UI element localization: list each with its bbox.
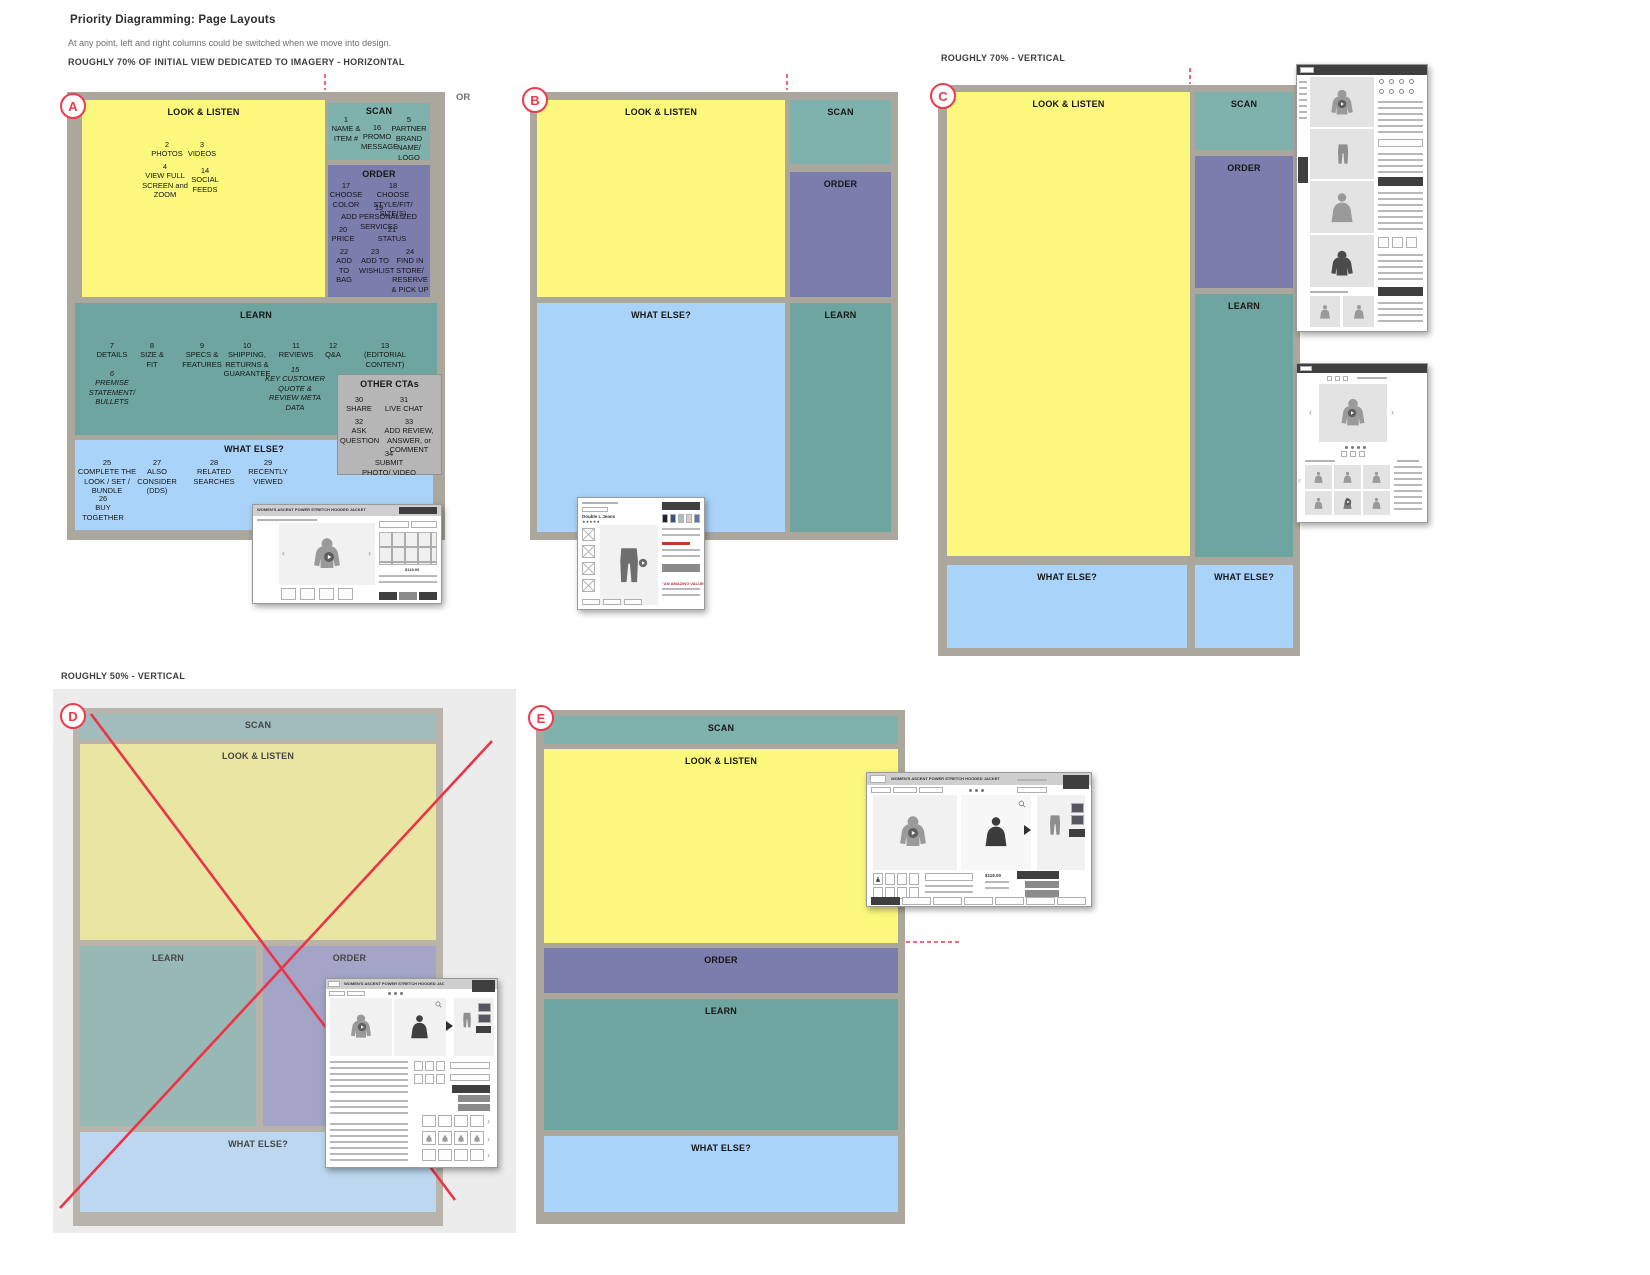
person-glyph [1317, 300, 1333, 324]
page-title: Priority Diagramming: Page Layouts [70, 14, 276, 26]
carousel-right-icon: › [487, 1135, 490, 1144]
carousel-dot [394, 992, 397, 995]
layout-e-scan-block: SCAN [544, 716, 898, 744]
thumb-text-lines [985, 881, 1009, 891]
diagram-item: 12Q&A [319, 341, 347, 360]
thumb-product-tile [454, 1149, 468, 1161]
thumb-icon-dot [1399, 79, 1404, 84]
thumb-breadcrumb-line [582, 502, 618, 504]
carousel-right-icon: › [368, 549, 371, 558]
thumb-mini-image [300, 588, 315, 600]
thumb-swatch-grid [379, 532, 437, 565]
diagram-item: 24FIND IN STORE/ RESERVE & PICK UP [391, 247, 429, 294]
diagram-item: 34SUBMIT PHOTO/ VIDEO [360, 449, 418, 477]
thumb-overlay-chip [478, 1003, 491, 1012]
thumb-tab [603, 599, 621, 605]
thumb-mini-image [319, 588, 334, 600]
block-title: WHAT ELSE? [544, 1136, 898, 1153]
thumb-swatch [662, 514, 668, 523]
thumb-bottom-tab [1057, 897, 1086, 905]
thumb-toolbar-icon [1327, 376, 1332, 381]
thumb-icon-dot [1389, 79, 1394, 84]
thumb-text-lines [330, 1123, 408, 1161]
thumb-button [379, 592, 397, 600]
thumb-product-tile [422, 1115, 436, 1127]
or-label-top: OR [456, 92, 470, 103]
thumb-button [419, 592, 437, 600]
block-title: LOOK & LISTEN [947, 92, 1190, 109]
diagram-item: 31LIVE CHAT [382, 395, 426, 414]
thumb-icon-dot [1379, 79, 1384, 84]
layout-c-order-block: ORDER [1195, 156, 1293, 288]
diagram-item: 21STATUS [375, 225, 409, 244]
hoodie-glyph [425, 1133, 433, 1144]
thumb-alt-view [582, 528, 595, 541]
carousel-dot [400, 992, 403, 995]
thumb-icon-square [1392, 237, 1403, 248]
jeans-glyph [1331, 135, 1355, 173]
thumb-swatch [694, 514, 700, 523]
thumb-tab [624, 599, 642, 605]
thumb-icon-square [1341, 451, 1347, 457]
carousel-right-icon: › [1391, 408, 1394, 417]
thumb-overlay-chip [1071, 815, 1084, 825]
thumb-icon-square [414, 1074, 423, 1084]
thumb-tab [893, 787, 917, 793]
diagram-item: 22ADD TO BAG [331, 247, 357, 285]
carousel-dot [975, 789, 978, 792]
block-title: OTHER CTAs [338, 375, 441, 389]
page-subtitle: At any point, left and right columns cou… [68, 38, 391, 48]
thumb-side-icons [1299, 81, 1307, 121]
thumb-logo [1300, 366, 1312, 371]
thumb-side-badge [1298, 157, 1308, 183]
thumb-dropdown [411, 521, 437, 528]
thumb-icon-square [425, 1061, 434, 1071]
thumb-toolbar-icon [1343, 376, 1348, 381]
thumb-icon-dot [1379, 89, 1384, 94]
thumb-overlay-chip [478, 1014, 491, 1023]
jeans-glyph [1043, 805, 1067, 845]
layout-b-badge: B [522, 87, 548, 113]
diagram-item: 15KEY CUSTOMER QUOTE & REVIEW META DATA [265, 365, 325, 412]
thumb-dropdown [925, 873, 973, 881]
thumb-dropdown [1378, 139, 1423, 147]
thumb-caption-line [1017, 779, 1047, 781]
thumb-text-lines [662, 528, 700, 538]
thumb-bottom-tab [871, 897, 900, 905]
person-glyph [1312, 468, 1325, 487]
hoodie-glyph [473, 1133, 481, 1144]
thumb-product-tile [470, 1149, 484, 1161]
mobile-screenshot-thumbnail-1 [1296, 64, 1428, 332]
diagram-item: 23ADD TO WISHLIST [359, 247, 391, 275]
thumb-icon-square [436, 1074, 445, 1084]
block-title: ORDER [790, 172, 891, 189]
person-glyph [1341, 468, 1354, 487]
layout-c-what-else-right-block: WHAT ELSE? [1195, 565, 1293, 648]
thumb-icon-square [436, 1061, 445, 1071]
block-title: SCAN [790, 100, 891, 117]
desktop-screenshot-thumbnail-d: WOMEN'S ASCENT POWER STRETCH HOODED JACK… [325, 978, 498, 1168]
thumb-icon-square [1406, 237, 1417, 248]
hoodie-glyph [457, 1133, 465, 1144]
thumb-breadcrumb-line [257, 519, 317, 521]
thumb-button [1378, 177, 1423, 186]
diagram-item: 27ALSO CONSIDER (DDS) [132, 458, 182, 496]
diagram-item: 25COMPLETE THE LOOK / SET / BUNDLE [77, 458, 137, 496]
thumb-text-lines [379, 575, 437, 585]
thumb-value-note: "AN AMAZING VALUE" [662, 582, 705, 587]
block-title: LOOK & LISTEN [544, 749, 898, 766]
thumb-dropdown [379, 521, 409, 528]
play-icon [907, 827, 919, 839]
person-back-glyph [1327, 243, 1357, 283]
thumb-caption-line [1310, 291, 1348, 293]
thumb-button [662, 564, 700, 572]
diagram-item: 2PHOTOS [147, 140, 187, 159]
carousel-dot [1363, 446, 1366, 449]
diagram-item: 28RELATED SEARCHES [187, 458, 241, 486]
thumb-overlay-chip [1071, 803, 1084, 813]
thumb-caption-line [1305, 460, 1335, 462]
thumb-tab [582, 599, 600, 605]
thumb-swatch [686, 514, 692, 523]
section-label-horizontal: ROUGHLY 70% OF INITIAL VIEW DEDICATED TO… [68, 57, 405, 67]
priority-diagramming-page: Priority Diagramming: Page Layouts At an… [0, 0, 1650, 1275]
layout-a-badge: A [60, 93, 86, 119]
thumb-button [476, 1026, 491, 1033]
thumb-cta-button [1063, 775, 1089, 789]
thumb-swatch [678, 514, 684, 523]
block-title: LEARN [1195, 294, 1293, 311]
block-title: SCAN [1195, 92, 1293, 109]
thumb-logo [1300, 67, 1314, 73]
thumb-text-lines [1378, 254, 1423, 282]
play-icon [323, 551, 335, 563]
thumb-jeans-title: Double L Jeans [582, 514, 615, 519]
thumb-header-bar [1297, 364, 1427, 373]
thumb-text-lines [1394, 466, 1422, 514]
thumb-button [1069, 829, 1085, 837]
hoodie-glyph [441, 1133, 449, 1144]
thumb-caption-line [1357, 377, 1387, 379]
section-label-50-vertical: ROUGHLY 50% - VERTICAL [61, 671, 185, 681]
thumb-product-tile [438, 1149, 452, 1161]
layout-e-what-else-block: WHAT ELSE? [544, 1136, 898, 1212]
carousel-dot [969, 789, 972, 792]
layout-e-look-listen-block: LOOK & LISTEN [544, 749, 898, 943]
person-glyph [1370, 494, 1383, 513]
layout-b-learn-block: LEARN [790, 303, 891, 532]
fold-marker-a [324, 74, 326, 90]
thumb-icon-dot [1409, 79, 1414, 84]
person-glyph [1351, 300, 1367, 324]
layout-e-learn-block: LEARN [544, 999, 898, 1130]
thumb-logo [328, 981, 340, 987]
thumb-product-title: WOMEN'S ASCENT POWER STRETCH HOODED JACK… [257, 508, 367, 513]
thumb-bottom-tab [995, 897, 1024, 905]
diagram-item: 16PROMO MESSAGE [361, 123, 393, 151]
zoom-icon [434, 1000, 443, 1009]
jeans-screenshot-thumbnail: Double L Jeans ★★★★★ "AN AMAZING VALUE" [577, 497, 705, 610]
thumb-price: $119.00 [405, 568, 419, 573]
thumb-caption-line [1397, 460, 1419, 462]
layout-b-scan-block: SCAN [790, 100, 891, 164]
carousel-right-icon: › [487, 1151, 490, 1160]
layout-e-badge: E [528, 705, 554, 731]
layout-c-scan-block: SCAN [1195, 92, 1293, 150]
thumb-text-lines [1378, 153, 1423, 173]
thumb-button [1025, 881, 1059, 888]
diagram-item: 29RECENTLY VIEWED [243, 458, 293, 486]
person-glyph [406, 1002, 433, 1052]
thumb-icon-square [425, 1074, 434, 1084]
layout-c-what-else-left-block: WHAT ELSE? [947, 565, 1187, 648]
play-icon [1344, 498, 1352, 506]
thumb-product-tile [422, 1149, 436, 1161]
thumb-text-lines [925, 885, 973, 897]
diagram-item: 13(EDITORIAL CONTENT) [357, 341, 413, 369]
thumb-product-tile [470, 1115, 484, 1127]
block-title: ORDER [544, 948, 898, 965]
thumb-swatch [670, 514, 676, 523]
section-label-70-vertical: ROUGHLY 70% - VERTICAL [941, 53, 1065, 63]
carousel-left-icon: ‹ [282, 549, 285, 558]
thumb-bottom-tab [933, 897, 962, 905]
block-title: SCAN [544, 716, 898, 733]
thumb-text-lines [1378, 192, 1423, 232]
thumb-tab [919, 787, 943, 793]
thumb-icon-square [909, 873, 919, 885]
thumb-dropdown [450, 1074, 490, 1081]
thumb-toolbar-icon [1335, 376, 1340, 381]
person-glyph [1325, 187, 1359, 229]
thumb-text-lines [662, 588, 700, 598]
layout-a-order-block: ORDER 17CHOOSE COLOR 18CHOOSE STYLE/FIT/… [328, 165, 430, 297]
thumb-icon-square [885, 873, 895, 885]
thumb-text-lines [1378, 302, 1423, 324]
thumb-stars: ★★★★★ [582, 520, 600, 525]
play-icon [1337, 99, 1347, 109]
thumb-mini-image [338, 588, 353, 600]
block-title: LOOK & LISTEN [537, 100, 785, 117]
desktop-screenshot-thumbnail-a: WOMEN'S ASCENT POWER STRETCH HOODED JACK… [252, 504, 442, 604]
block-title: WHAT ELSE? [947, 565, 1187, 582]
next-arrow-icon [1024, 825, 1031, 835]
thumb-alt-view [582, 562, 595, 575]
play-icon [357, 1022, 367, 1032]
layout-b-look-listen-block: LOOK & LISTEN [537, 100, 785, 297]
next-arrow-icon [446, 1021, 453, 1031]
thumb-product-title: WOMEN'S ASCENT POWER STRETCH HOODED JACK… [891, 777, 1011, 782]
jeans-glyph [458, 1005, 476, 1035]
thumb-dropdown [450, 1062, 490, 1069]
block-title: LEARN [790, 303, 891, 320]
diagram-item: 3VIDEOS [182, 140, 222, 159]
thumb-icon-square [1378, 237, 1389, 248]
layout-a-look-listen-block: LOOK & LISTEN 2PHOTOS 3VIDEOS 4VIEW FULL… [82, 100, 325, 297]
thumb-bottom-tab [964, 897, 993, 905]
block-title: LOOK & LISTEN [82, 100, 325, 117]
person-glyph [979, 800, 1013, 864]
block-title: LEARN [75, 303, 437, 320]
thumb-button [452, 1085, 490, 1093]
carousel-dot [1357, 446, 1360, 449]
thumb-button [399, 592, 417, 600]
layout-c-look-listen-block: LOOK & LISTEN [947, 92, 1190, 556]
thumb-text-lines [662, 549, 700, 559]
diagram-item: 30SHARE [344, 395, 374, 414]
block-title: WHAT ELSE? [1195, 565, 1293, 582]
diagram-item: 7DETAILS [90, 341, 134, 360]
block-title: WHAT ELSE? [537, 303, 785, 320]
carousel-dot [981, 789, 984, 792]
thumb-logo [870, 775, 886, 783]
carousel-dot [1351, 446, 1354, 449]
carousel-left-icon: ‹ [1298, 476, 1301, 485]
thumb-alt-view [582, 545, 595, 558]
layout-b-order-block: ORDER [790, 172, 891, 297]
thumb-price: $119.00 [985, 873, 1001, 878]
thumb-icon-square [414, 1061, 423, 1071]
thumb-button [458, 1104, 490, 1111]
thumb-tab [1017, 787, 1047, 793]
diagram-item: 11REVIEWS [274, 341, 318, 360]
desktop-screenshot-thumbnail-e: WOMEN'S ASCENT POWER STRETCH HOODED JACK… [866, 772, 1092, 907]
carousel-left-icon: ‹ [1309, 408, 1312, 417]
thumb-button [662, 502, 700, 510]
thumb-text-lines [1378, 101, 1423, 133]
thumb-header-bar [1297, 65, 1427, 75]
thumb-product-tile [438, 1115, 452, 1127]
mobile-screenshot-thumbnail-2: ‹ › ‹ [1296, 363, 1428, 523]
thumb-button [1017, 871, 1059, 879]
thumb-bottom-tab [902, 897, 931, 905]
diagram-item: 26BUY TOGETHER [81, 494, 125, 522]
thumb-tab [329, 991, 345, 996]
thumb-tab [347, 991, 365, 996]
fold-marker-e [906, 941, 962, 943]
diagram-item: 20PRICE [328, 225, 358, 244]
thumb-product-tile [454, 1115, 468, 1127]
block-title: ORDER [328, 165, 430, 179]
thumb-icon-dot [1389, 89, 1394, 94]
thumb-cta-button [472, 980, 495, 992]
layout-c-learn-block: LEARN [1195, 294, 1293, 557]
thumb-button [1025, 890, 1059, 897]
thumb-alt-view [582, 579, 595, 592]
block-title: LEARN [544, 999, 898, 1016]
thumb-tab [871, 787, 891, 793]
thumb-text-lines [330, 1061, 408, 1095]
carousel-dot [388, 992, 391, 995]
layout-a-other-ctas-block: OTHER CTAs 30SHARE 31LIVE CHAT 32ASK QUE… [337, 374, 442, 475]
thumb-icon-square [897, 873, 907, 885]
thumb-text-lines [330, 1100, 408, 1118]
thumb-sale-price-line [662, 542, 690, 545]
thumb-icon-square [1350, 451, 1356, 457]
fold-marker-b [786, 74, 788, 90]
diagram-item: 8SIZE & FIT [134, 341, 170, 369]
block-title: ORDER [1195, 156, 1293, 173]
layout-a-scan-block: SCAN 1NAME & ITEM # 16PROMO MESSAGE 5PAR… [328, 103, 430, 160]
play-icon [1347, 408, 1357, 418]
person-glyph [1312, 494, 1325, 513]
thumb-checkbox-row [582, 507, 608, 512]
thumb-icon-dot [1409, 89, 1414, 94]
thumb-button [1378, 287, 1423, 296]
layout-c-badge: C [930, 83, 956, 109]
diagram-item: 1NAME & ITEM # [330, 115, 362, 143]
carousel-dot [1345, 446, 1348, 449]
thumb-mini-image [281, 588, 296, 600]
carousel-right-icon: › [487, 1117, 490, 1126]
layout-e-order-block: ORDER [544, 948, 898, 993]
diagram-item: 4VIEW FULL SCREEN and ZOOM [141, 162, 189, 200]
fold-marker-c [1189, 68, 1191, 84]
diagram-item: 32ASK QUESTION [340, 417, 378, 445]
diagram-item: 5PARTNER BRAND NAME/ LOGO [390, 115, 428, 162]
play-icon [638, 558, 648, 568]
thumb-cta-button [399, 507, 437, 514]
thumb-icon-dot [1399, 89, 1404, 94]
zoom-icon [1017, 799, 1027, 809]
person-glyph [1370, 468, 1383, 487]
thumb-button [458, 1095, 490, 1102]
diagram-item: 14SOCIAL FEEDS [183, 166, 227, 194]
person-glyph [875, 875, 881, 884]
thumb-product-title: WOMEN'S ASCENT POWER STRETCH HOODED JACK… [344, 982, 444, 987]
thumb-icon-square [1359, 451, 1365, 457]
diagram-item: 6PREMISE STATEMENT/ BULLETS [84, 369, 140, 407]
thumb-bottom-tab [1026, 897, 1055, 905]
